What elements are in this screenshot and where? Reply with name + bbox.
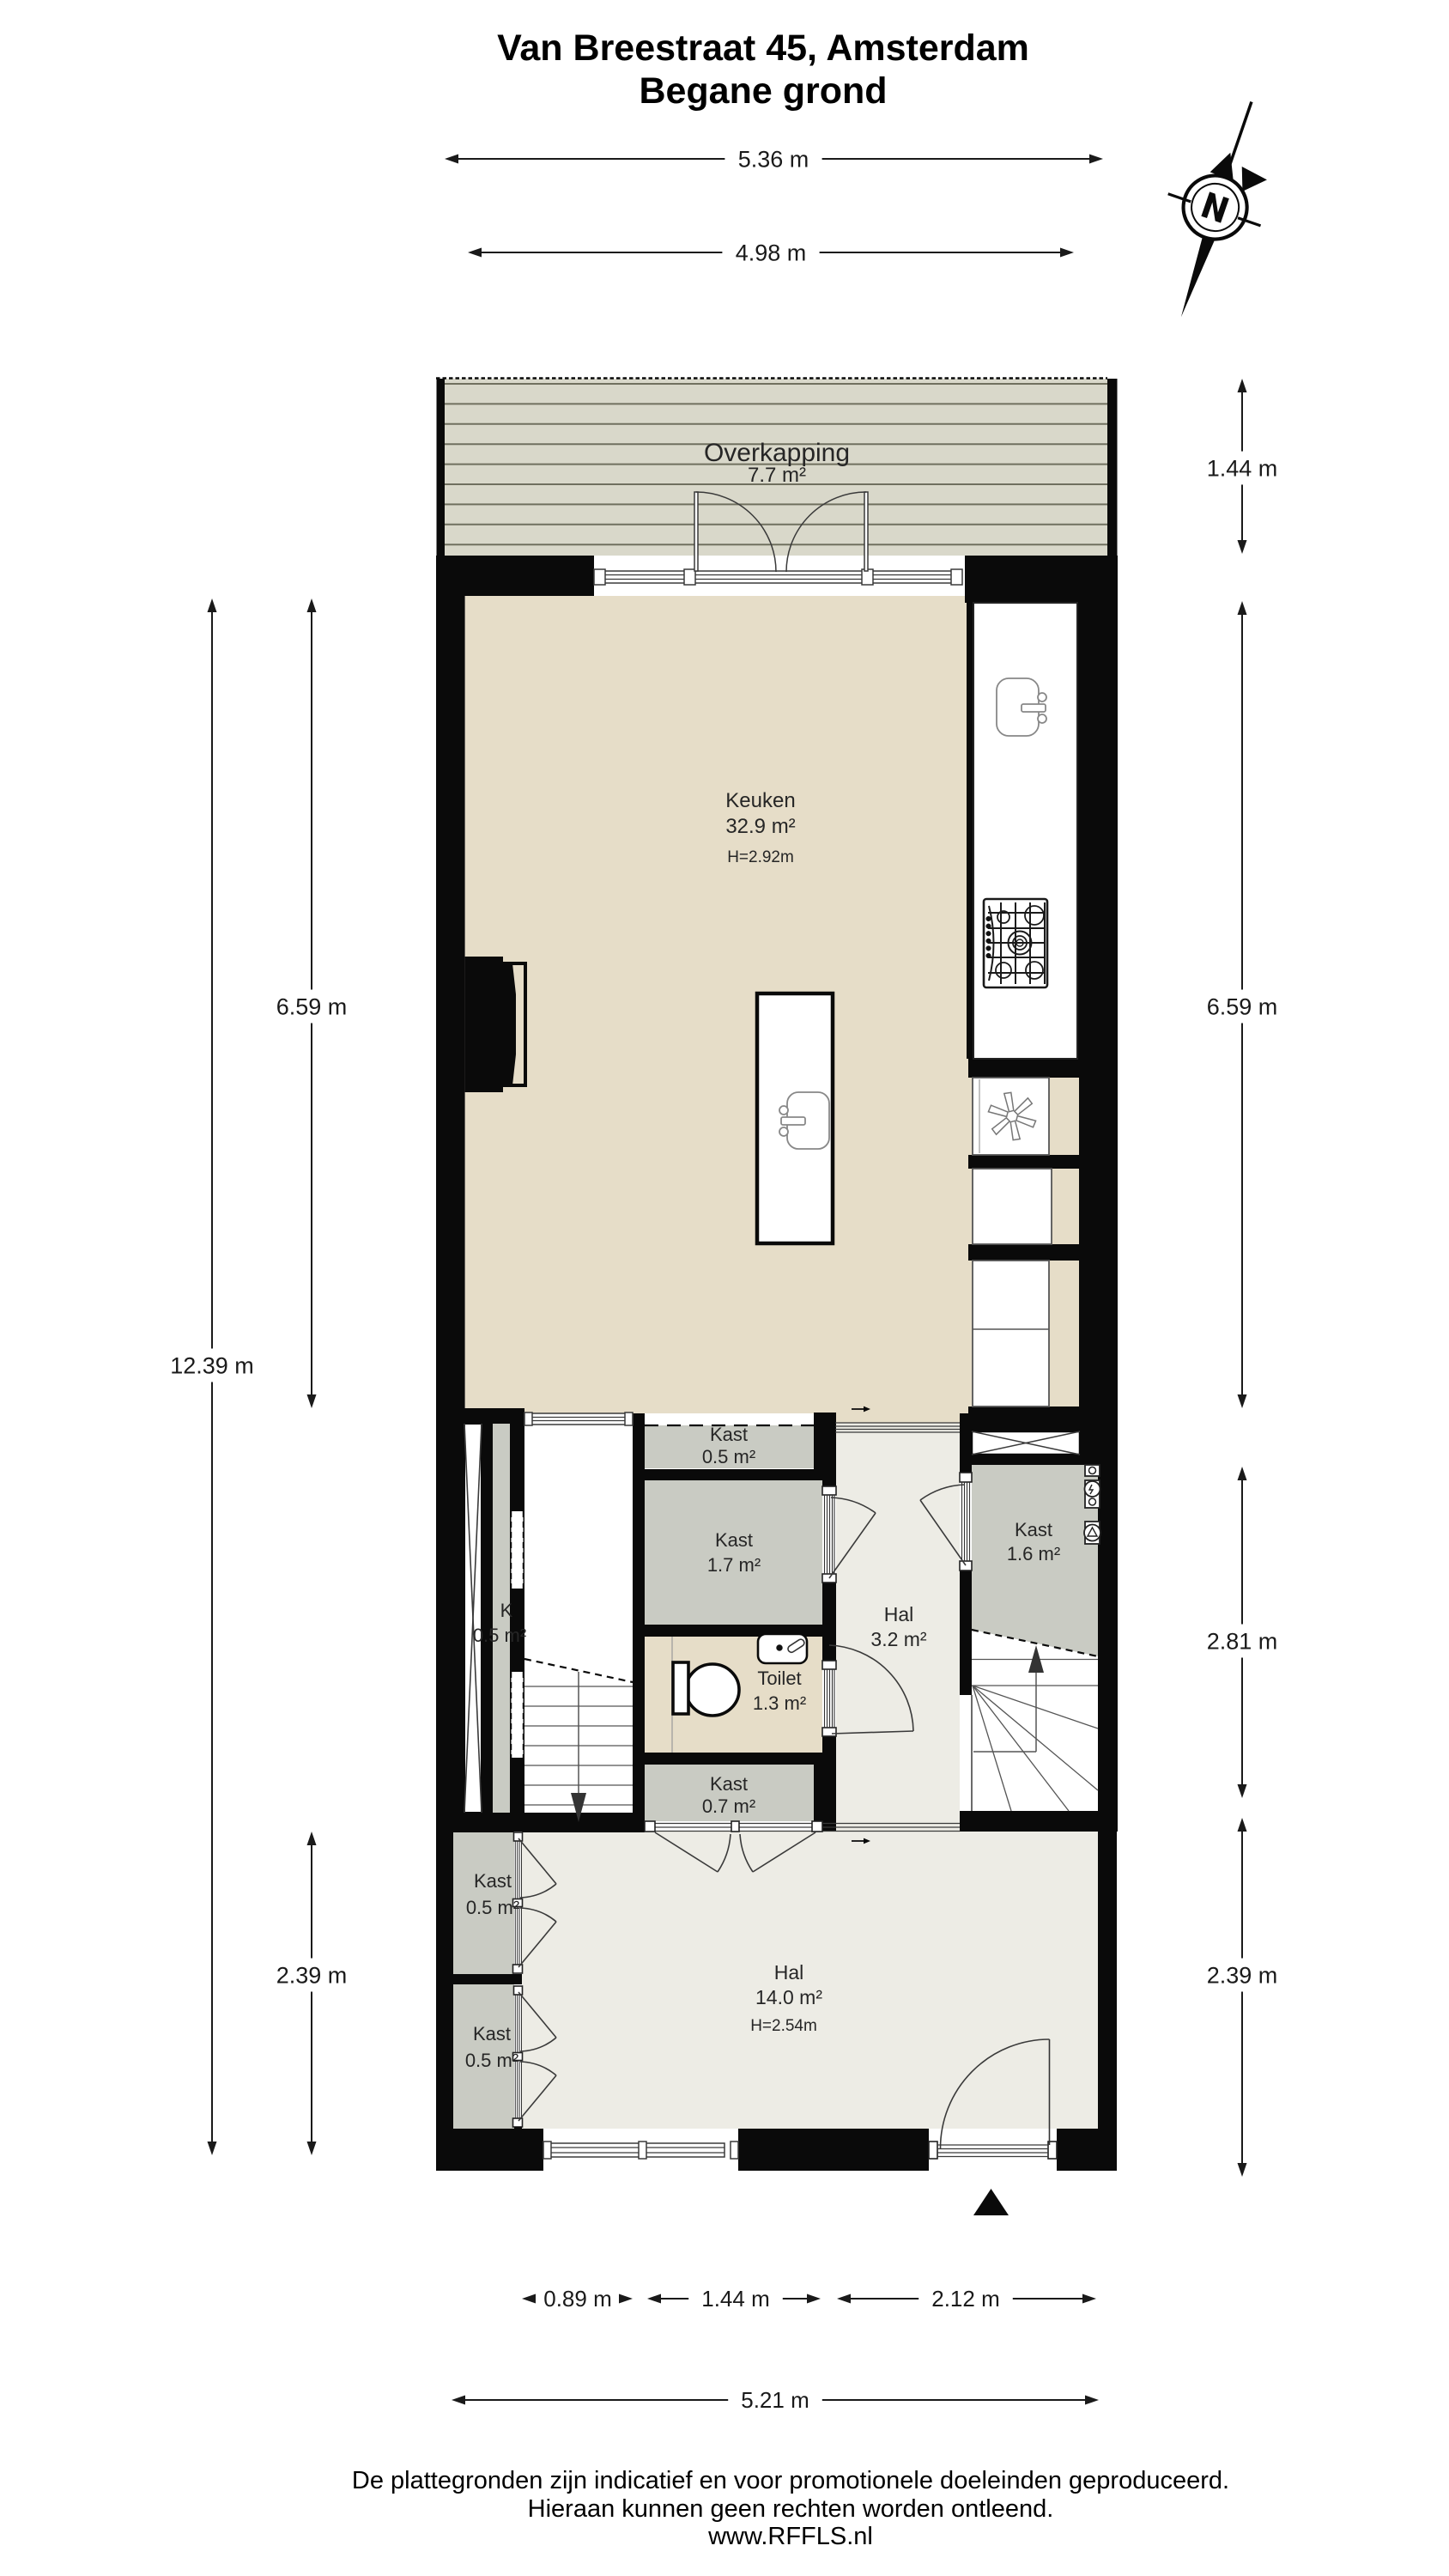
svg-text:1.3 m²: 1.3 m² [753, 1692, 806, 1714]
svg-text:Kast: Kast [710, 1424, 748, 1445]
svg-text:0.7 m²: 0.7 m² [702, 1795, 755, 1817]
svg-text:3.2 m²: 3.2 m² [870, 1628, 927, 1650]
svg-text:2.39 m: 2.39 m [276, 1962, 348, 1988]
svg-text:H=2.92m: H=2.92m [727, 848, 794, 866]
svg-text:12.39 m: 12.39 m [170, 1352, 254, 1378]
svg-text:Hieraan kunnen geen rechten wo: Hieraan kunnen geen rechten worden ontle… [528, 2495, 1054, 2523]
svg-text:4.98 m: 4.98 m [736, 240, 807, 265]
svg-text:Kast: Kast [715, 1529, 753, 1551]
svg-text:Kast: Kast [474, 1870, 512, 1892]
svg-text:0.5 m²: 0.5 m² [465, 2050, 518, 2071]
svg-text:32.9 m²: 32.9 m² [725, 815, 795, 838]
svg-text:0.5 m²: 0.5 m² [466, 1897, 519, 1918]
svg-text:Kast: Kast [473, 2023, 511, 2044]
svg-text:0.5 m²: 0.5 m² [473, 1625, 526, 1646]
svg-text:14.0 m²: 14.0 m² [755, 1986, 822, 2008]
svg-text:Hal: Hal [774, 1961, 804, 1984]
svg-text:1.44 m: 1.44 m [701, 2286, 770, 2312]
svg-text:2.12 m: 2.12 m [931, 2286, 1000, 2312]
svg-text:Begane grond: Begane grond [639, 70, 887, 112]
svg-text:1.44 m: 1.44 m [1207, 455, 1278, 481]
svg-text:Kast: Kast [710, 1773, 748, 1795]
svg-text:H=2.54m: H=2.54m [750, 2017, 817, 2035]
svg-text:0.5 m²: 0.5 m² [702, 1446, 755, 1467]
svg-text:K: K [500, 1600, 513, 1621]
svg-text:Toilet: Toilet [757, 1668, 801, 1689]
svg-text:Kast: Kast [1015, 1519, 1052, 1540]
svg-text:7.7 m²: 7.7 m² [748, 464, 806, 487]
svg-text:www.RFFLS.nl: www.RFFLS.nl [707, 2523, 873, 2550]
svg-text:5.21 m: 5.21 m [741, 2387, 809, 2413]
svg-text:1.6 m²: 1.6 m² [1007, 1543, 1060, 1564]
svg-text:Van Breestraat 45, Amsterdam: Van Breestraat 45, Amsterdam [497, 27, 1029, 69]
svg-text:6.59 m: 6.59 m [276, 993, 348, 1019]
svg-text:0.89 m: 0.89 m [543, 2286, 612, 2312]
svg-text:Hal: Hal [884, 1603, 914, 1625]
svg-text:Keuken: Keuken [725, 789, 795, 812]
svg-text:2.81 m: 2.81 m [1207, 1628, 1278, 1654]
svg-text:5.36 m: 5.36 m [738, 146, 809, 172]
svg-text:1.7 m²: 1.7 m² [707, 1554, 761, 1576]
svg-text:2.39 m: 2.39 m [1207, 1962, 1278, 1988]
svg-text:6.59 m: 6.59 m [1207, 993, 1278, 1019]
svg-text:De plattegronden zijn indicati: De plattegronden zijn indicatief en voor… [352, 2467, 1229, 2494]
